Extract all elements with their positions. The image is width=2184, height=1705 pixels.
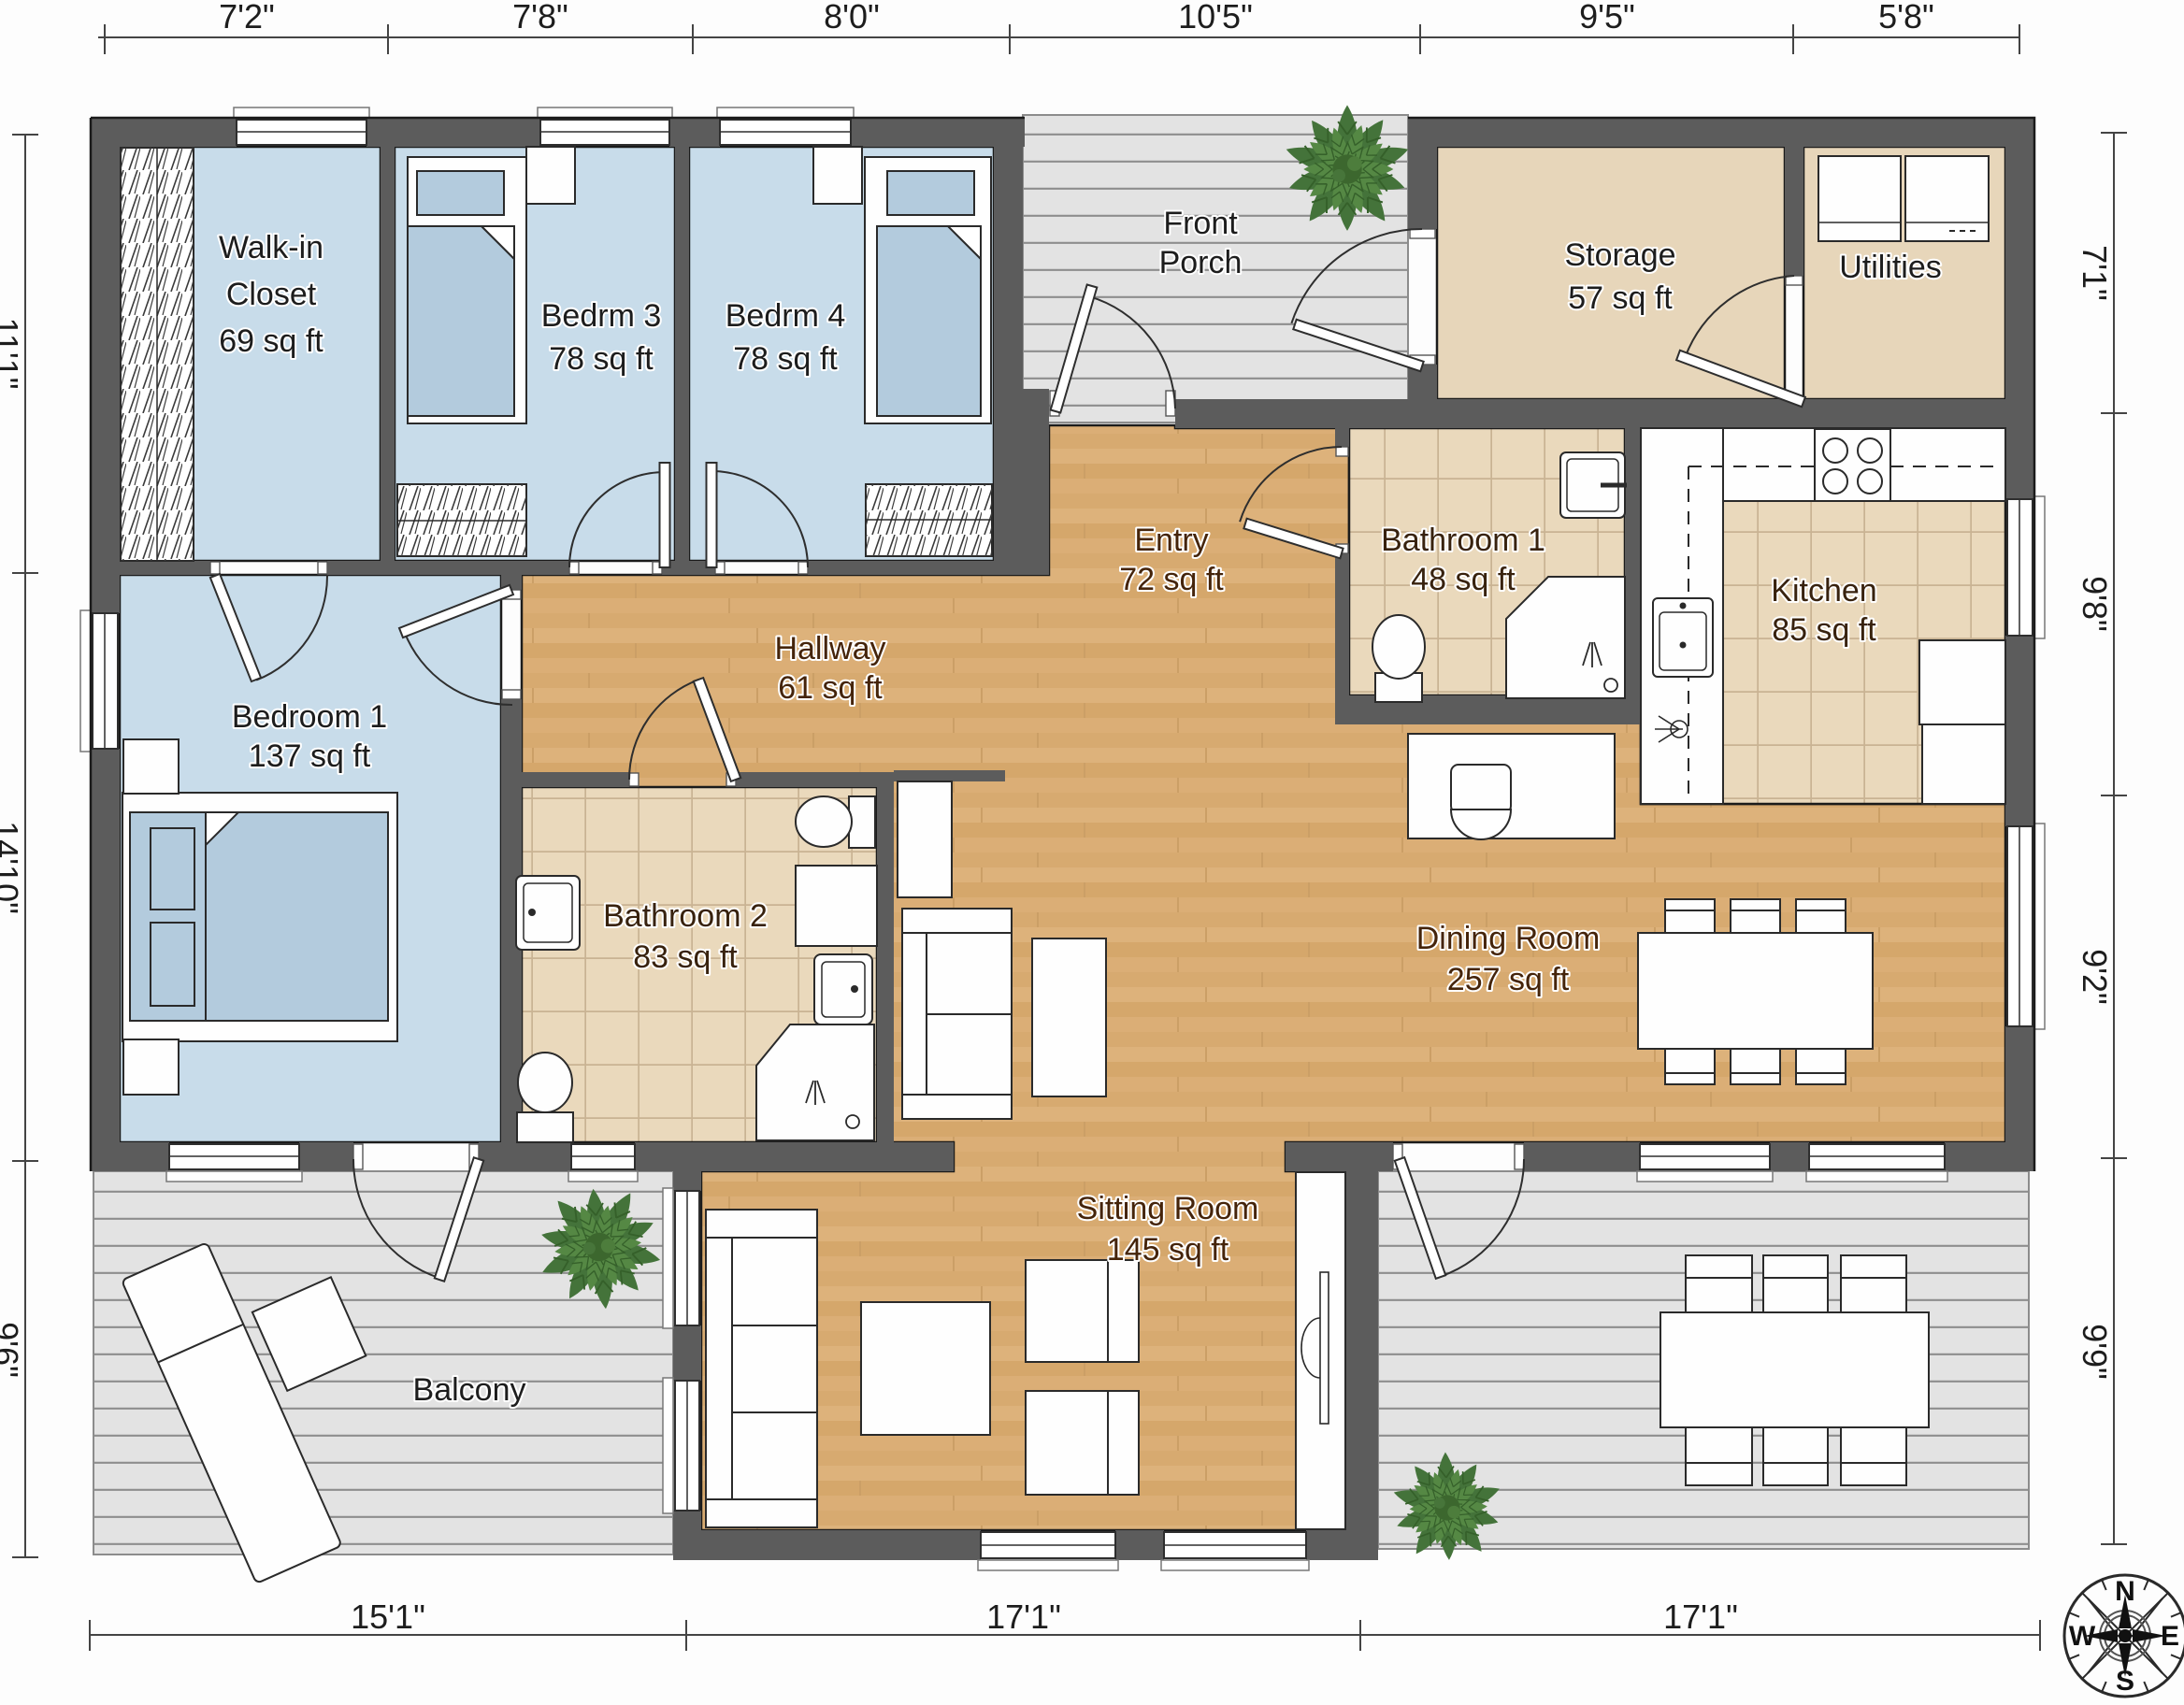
svg-text:69 sq ft: 69 sq ft <box>219 323 323 359</box>
svg-text:Closet: Closet <box>226 277 317 312</box>
svg-text:14'10": 14'10" <box>0 821 25 914</box>
svg-text:85 sq ft: 85 sq ft <box>1772 612 1876 648</box>
svg-text:Bedroom 1: Bedroom 1 <box>232 699 387 735</box>
svg-text:17'1": 17'1" <box>1663 1598 1738 1636</box>
svg-text:N: N <box>2115 1576 2135 1607</box>
svg-text:17'1": 17'1" <box>986 1598 1061 1636</box>
svg-text:9'8": 9'8" <box>2076 576 2114 632</box>
svg-text:15'1": 15'1" <box>351 1598 425 1636</box>
svg-text:Kitchen: Kitchen <box>1771 573 1876 609</box>
svg-text:7'8": 7'8" <box>512 0 568 36</box>
svg-text:Bathroom 1: Bathroom 1 <box>1381 523 1545 558</box>
svg-text:5'8": 5'8" <box>1878 0 1934 36</box>
svg-text:145 sq ft: 145 sq ft <box>1107 1232 1229 1268</box>
svg-text:Bedrm 4: Bedrm 4 <box>726 298 846 334</box>
svg-text:Sitting Room: Sitting Room <box>1077 1191 1259 1226</box>
svg-text:78 sq ft: 78 sq ft <box>549 341 654 377</box>
svg-text:S: S <box>2116 1666 2134 1697</box>
svg-text:9'9": 9'9" <box>2076 1324 2114 1380</box>
svg-text:7'1": 7'1" <box>2076 245 2114 301</box>
svg-text:Porch: Porch <box>1159 245 1243 280</box>
svg-text:72 sq ft: 72 sq ft <box>1119 562 1224 597</box>
svg-text:9'5": 9'5" <box>1579 0 1635 36</box>
svg-text:Utilities: Utilities <box>1839 250 1942 285</box>
svg-text:Bathroom 2: Bathroom 2 <box>603 898 768 934</box>
svg-text:10'5": 10'5" <box>1178 0 1253 36</box>
svg-text:9'2": 9'2" <box>2076 949 2114 1005</box>
svg-text:61 sq ft: 61 sq ft <box>778 670 883 706</box>
svg-text:8'0": 8'0" <box>824 0 880 36</box>
svg-text:7'2": 7'2" <box>219 0 275 36</box>
svg-text:Balcony: Balcony <box>413 1372 526 1408</box>
svg-text:Bedrm 3: Bedrm 3 <box>541 298 662 334</box>
svg-text:Dining Room: Dining Room <box>1416 921 1601 956</box>
svg-text:48 sq ft: 48 sq ft <box>1411 562 1516 597</box>
svg-text:137 sq ft: 137 sq ft <box>249 738 371 774</box>
svg-text:57 sq ft: 57 sq ft <box>1568 280 1673 316</box>
svg-text:83 sq ft: 83 sq ft <box>633 939 738 975</box>
svg-text:11'1": 11'1" <box>0 317 25 389</box>
svg-text:W: W <box>2069 1621 2096 1652</box>
svg-text:Hallway: Hallway <box>774 631 885 666</box>
svg-text:257 sq ft: 257 sq ft <box>1447 962 1570 997</box>
svg-text:9'6": 9'6" <box>0 1322 25 1378</box>
svg-text:Front: Front <box>1163 206 1238 241</box>
svg-text:78 sq ft: 78 sq ft <box>733 341 838 377</box>
svg-text:E: E <box>2161 1621 2179 1652</box>
svg-text:Walk-in: Walk-in <box>219 230 323 265</box>
svg-text:Storage: Storage <box>1564 237 1675 273</box>
svg-text:Entry: Entry <box>1134 523 1208 558</box>
